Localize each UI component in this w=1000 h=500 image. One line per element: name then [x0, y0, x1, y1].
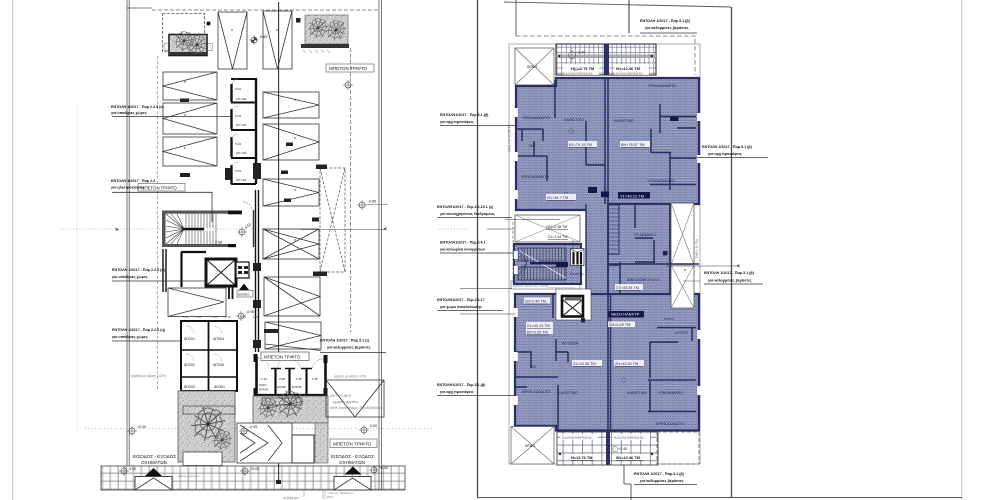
svg-text:Ζ1=43.36 ΤΜ: Ζ1=43.36 ΤΜ: [573, 362, 596, 366]
svg-text:ΚΕΝΟ: ΚΕΝΟ: [527, 65, 537, 69]
svg-text:ΥΠ.ΔΩΜΑΤΙΟ: ΥΠ.ΔΩΜΑΤΙΟ: [633, 233, 656, 237]
svg-text:ΑΠ202: ΑΠ202: [184, 363, 195, 367]
svg-text:2.08: 2.08: [279, 377, 285, 381]
svg-text:Β1=79.15 ΤΜ: Β1=79.15 ΤΜ: [569, 143, 592, 147]
svg-text:για καλυμμένες βεράντες: για καλυμμένες βεράντες: [640, 479, 684, 483]
svg-text:ΕΝΤΟΛΗ 1/2017 - Παρ.3.1 (ε): ΕΝΤΟΛΗ 1/2017 - Παρ.3.1 (ε): [320, 339, 370, 343]
svg-text:Π(;)=2.48 ΤΜ: Π(;)=2.48 ΤΜ: [546, 225, 567, 229]
svg-text:ΑΠ 101: ΑΠ 101: [236, 178, 247, 182]
svg-text:ΚΡΕΒ.ΔΩΜΑΤΙΟ: ΚΡΕΒ.ΔΩΜΑΤΙΟ: [522, 390, 550, 394]
svg-text:-0.05: -0.05: [249, 425, 257, 429]
svg-text:για αρχ.προσόψεις: για αρχ.προσόψεις: [708, 152, 742, 156]
svg-text:ΖΗ=43.90 ΤΜ: ΖΗ=43.90 ΤΜ: [615, 362, 638, 366]
svg-text:0.00: 0.00: [129, 467, 136, 471]
svg-text:για καλυμμένες βεράντες: για καλυμμένες βεράντες: [708, 279, 752, 283]
svg-text:5.04: 5.04: [235, 142, 241, 146]
svg-text:ΚΟΙΝΔ: ΚΟΙΝΔ: [292, 385, 302, 389]
svg-text:ΚΑΘΙΣΤΙΚΟ: ΚΑΘΙΣΤΙΚΟ: [564, 118, 584, 122]
svg-text:Θ1=12.46 ΤΜ: Θ1=12.46 ΤΜ: [616, 455, 640, 460]
svg-text:ΚΟΥΖΙΝΑ: ΚΟΥΖΙΝΑ: [562, 342, 579, 346]
svg-text:Θ1=12.46 ΤΜ: Θ1=12.46 ΤΜ: [616, 66, 640, 71]
svg-text:WC: WC: [529, 144, 536, 148]
svg-text:ΔΙΚΤΥΟ ΔΕΗ: ΔΙΚΤΥΟ ΔΕΗ: [330, 394, 352, 398]
svg-text:ΥΠΝΟΔΩΜΑΤΙΟ: ΥΠΝΟΔΩΜΑΤΙΟ: [521, 175, 549, 179]
svg-text:-0.65: -0.65: [368, 200, 376, 204]
svg-text:ΑΠ 102: ΑΠ 102: [236, 151, 247, 155]
svg-text:ΚΑΘΙΣΤΙΚΟ: ΚΑΘΙΣΤΙΚΟ: [627, 391, 647, 395]
svg-text:1.50: 1.50: [312, 377, 318, 381]
svg-text:1.46: 1.46: [240, 315, 246, 319]
svg-text:είσοδος: είσοδος: [238, 293, 250, 297]
svg-text:ράμπα με κλίση <12%: ράμπα με κλίση <12%: [334, 375, 366, 379]
svg-text:ΥΠΝΟΔΩΜΑΤΙΟ: ΥΠΝΟΔΩΜΑΤΙΟ: [648, 84, 676, 88]
svg-text:για αρχ.προσόψεις: για αρχ.προσόψεις: [440, 120, 474, 124]
svg-text:+0.00: +0.00: [137, 425, 146, 429]
svg-text:5.04: 5.04: [235, 169, 241, 173]
svg-text:ΘΕΣΗ ΗΛΕΚΤΡ: ΘΕΣΗ ΗΛΕΚΤΡ: [611, 312, 640, 317]
svg-text:ΚΡΕΒ.ΔΩΜΑΤΙΟ: ΚΡΕΒ.ΔΩΜΑΤΙΟ: [656, 422, 684, 426]
svg-text:ΔΙΑΔΡ: ΔΙΑΔΡ: [277, 385, 286, 389]
svg-text:ΒΙΒΛΙΟΘΗΚΗ ΚΛΠ: ΒΙΒΛΙΟΘΗΚΗ ΚΛΠ: [627, 278, 660, 282]
svg-text:0.00: 0.00: [370, 424, 377, 428]
svg-text:ΜΠΕΤΟΝ ΤΡΙΦΤΟ: ΜΠΕΤΟΝ ΤΡΙΦΤΟ: [329, 66, 368, 71]
svg-text:PVC: PVC: [327, 495, 334, 499]
svg-text:ΑΠ204: ΑΠ204: [213, 337, 224, 341]
svg-text:ΚΑΛΥΜ ΒΕΡΑΝΤΑ: ΚΑΛΥΜ ΒΕΡΑΝΤΑ: [614, 436, 644, 440]
svg-text:+2.40: +2.40: [576, 51, 585, 55]
svg-text:Υ1=43.13 ΤΜ: Υ1=43.13 ΤΜ: [620, 193, 644, 198]
svg-text:Η=12.76 ΤΜ: Η=12.76 ΤΜ: [571, 455, 593, 460]
svg-text:ΕΝΤΟΛΗ 1/2017 - Παρ.3.1.(β): ΕΝΤΟΛΗ 1/2017 - Παρ.3.1.(β): [640, 19, 691, 23]
svg-text:Η(;)=2.76 ΤΜ: Η(;)=2.76 ΤΜ: [571, 66, 594, 71]
svg-text:ΑΠ 104: ΑΠ 104: [236, 97, 247, 101]
svg-text:ΑΠ 103: ΑΠ 103: [236, 123, 247, 127]
svg-text:για ηλεκτροκίνηση: για ηλεκτροκίνηση: [111, 186, 145, 190]
svg-text:πεζόδρομο: πεζόδρομο: [283, 496, 299, 500]
svg-text:για υπαίθριες χώρες: για υπαίθριες χώρες: [112, 275, 148, 279]
svg-text:ΕΝΤΟΛΗ 1/2017 - Παρ 2.2: ΕΝΤΟΛΗ 1/2017 - Παρ 2.2: [111, 179, 155, 183]
svg-text:ΣΤ=43.45 ΤΜ: ΣΤ=43.45 ΤΜ: [616, 286, 639, 290]
svg-text:ΕΝΤΟΛΗ 1/2017 - Παρ.3.1 (β): ΕΝΤΟΛΗ 1/2017 - Παρ.3.1 (β): [634, 472, 685, 476]
svg-text:ΕΝΤΟΛΗ1/2017 - Περ.2.2.17: ΕΝΤΟΛΗ1/2017 - Περ.2.2.17: [437, 298, 485, 302]
svg-text:+2.40: +2.40: [618, 447, 627, 451]
svg-text:1.50: 1.50: [296, 377, 302, 381]
svg-text:ΚΑΛΥΜ ΒΕΡΑΝΤΑ: ΚΑΛΥΜ ΒΕΡΑΝΤΑ: [613, 72, 643, 76]
svg-text:ΥΠΝΟΔΩΜΑΤΙΟ: ΥΠΝΟΔΩΜΑΤΙΟ: [658, 391, 683, 395]
svg-text:ΕΝΤΟΛΗ 1/2017 - Παρ.3.1 (β): ΕΝΤΟΛΗ 1/2017 - Παρ.3.1 (β): [702, 145, 753, 149]
svg-text:ΛΟΥΤΡΟ: ΛΟΥΤΡΟ: [675, 331, 689, 335]
svg-text:ΕΝΤΟΛΗ 1/2017 - Παρ 2.2.5 (η): ΕΝΤΟΛΗ 1/2017 - Παρ 2.2.5 (η): [112, 268, 166, 272]
svg-text:ΚΕΝΟ: ΚΕΝΟ: [525, 444, 535, 448]
svg-text:ΕΝΤΟΛΗ1/2017 - Περ.2.4.1: ΕΝΤΟΛΗ1/2017 - Περ.2.4.1: [440, 241, 486, 245]
svg-text:ΕΝΤΟΛΗ 1/2017 - Παρ.3.1 (β): ΕΝΤΟΛΗ 1/2017 - Παρ.3.1 (β): [704, 271, 755, 275]
svg-text:ΚΑΘΙΣΤΙΚΟ: ΚΑΘΙΣΤΙΚΟ: [614, 119, 634, 123]
svg-text:Θ1=34.7 ΤΜ: Θ1=34.7 ΤΜ: [547, 196, 568, 200]
svg-text:για χώρο ανακύκλωσης: για χώρο ανακύκλωσης: [440, 305, 482, 309]
svg-text:ηλεκτρ.οχημάτων: ηλεκτρ.οχημάτων: [178, 474, 200, 478]
svg-text:+0.00: +0.00: [379, 466, 388, 470]
svg-text:για κατώφλια ανοιγμάτων: για κατώφλια ανοιγμάτων: [440, 248, 485, 252]
svg-text:1.46: 1.46: [196, 315, 202, 319]
svg-text:ΑΠ301: ΑΠ301: [214, 385, 225, 389]
svg-text:ΜΠΕΤΟΝ ΤΡΙΦΤΟ: ΜΠΕΤΟΝ ΤΡΙΦΤΟ: [141, 186, 177, 191]
svg-text:ΒΗ=78.57 ΤΜ: ΒΗ=78.57 ΤΜ: [621, 143, 644, 147]
svg-text:1.40: 1.40: [261, 377, 267, 381]
svg-text:ΜΠΕΤΟΝ ΤΡΙΦΤΟ: ΜΠΕΤΟΝ ΤΡΙΦΤΟ: [264, 355, 301, 360]
svg-text:5.04: 5.04: [235, 114, 241, 118]
svg-text:1.35: 1.35: [183, 315, 189, 319]
svg-text:ΕΝΤΟΛΗ 1/2017 - Παρ 2.2.5 (κ): ΕΝΤΟΛΗ 1/2017 - Παρ 2.2.5 (κ): [111, 105, 165, 109]
svg-text:1.35: 1.35: [253, 315, 259, 319]
svg-text:1.35: 1.35: [212, 315, 218, 319]
svg-text:ράμπα με κλίση <12%: ράμπα με κλίση <12%: [131, 374, 165, 378]
svg-text:ΕΝΤΟΛΗ 1/2017 - Παρ 2.2.5 (η): ΕΝΤΟΛΗ 1/2017 - Παρ 2.2.5 (η): [112, 328, 166, 332]
svg-text:ηχητικό φρεάτιο: ηχητικό φρεάτιο: [333, 400, 358, 404]
svg-text:ΚΑΛΥΜ ΒΕΡΑΝΤΑ: ΚΑΛΥΜ ΒΕΡΑΝΤΑ: [563, 72, 593, 76]
svg-text:ΑΠΟΘ: ΑΠΟΘ: [259, 388, 269, 392]
svg-text:ΝΤΟΥΛ: ΝΤΟΥΛ: [664, 317, 674, 321]
svg-text:ΣΘ=0.29 ΤΜ: ΣΘ=0.29 ΤΜ: [609, 323, 630, 327]
svg-text:ΕΝΤΟΛΗ1/2017 - Περ.2.2.15.1 (γ: ΕΝΤΟΛΗ1/2017 - Περ.2.2.15.1 (γ): [437, 205, 494, 209]
svg-text:ΜΗΚ διαστάσεων 700x500x500κ: ΜΗΚ διαστάσεων 700x500x500κ: [330, 406, 383, 410]
svg-text:ΚΑΛΥΜ ΒΕΡΑΝΤΑ: ΚΑΛΥΜ ΒΕΡΑΝΤΑ: [562, 436, 592, 440]
svg-text:Β5=0.29 ΤΜ: Β5=0.29 ΤΜ: [527, 331, 548, 335]
svg-text:ΕΝΤΟΛΗ1/2017 - Περ.3.1.(β): ΕΝΤΟΛΗ1/2017 - Περ.3.1.(β): [440, 113, 489, 117]
svg-text:για καλυμμένες βεράντες: για καλυμμένες βεράντες: [645, 26, 689, 30]
svg-text:-0.65: -0.65: [259, 35, 267, 39]
svg-text:Σ1=43.13 ΤΜ: Σ1=43.13 ΤΜ: [527, 324, 550, 328]
svg-text:ΕΝΤΟΛΗ1/2017 - Περ.3.1.(β): ΕΝΤΟΛΗ1/2017 - Περ.3.1.(β): [437, 383, 486, 387]
svg-text:5.04: 5.04: [235, 87, 241, 91]
svg-text:ΕΙΣΟΔΟΣ - ΕΞΟΔΟΣ: ΕΙΣΟΔΟΣ - ΕΞΟΔΟΣ: [331, 454, 374, 459]
svg-text:για υπαίθριες χώρες: για υπαίθριες χώρες: [112, 335, 148, 339]
svg-text:για κοινόχρηστους διαδρόμους: για κοινόχρηστους διαδρόμους: [440, 212, 495, 216]
svg-text:για καλυμμένες βεράντες: για καλυμμένες βεράντες: [327, 346, 371, 350]
svg-text:ΑΠ203: ΑΠ203: [184, 385, 195, 389]
svg-text:-0.95: -0.95: [246, 310, 254, 314]
svg-text:ΟΧΗΜΑΤΩΝ: ΟΧΗΜΑΤΩΝ: [339, 460, 365, 465]
svg-text:για αρχ.προσόψεις: για αρχ.προσόψεις: [440, 390, 474, 394]
svg-text:ΕΙΣΟΔΟΣ - ΕΞΟΔΟΣ: ΕΙΣΟΔΟΣ - ΕΞΟΔΟΣ: [133, 454, 176, 459]
svg-text:ΣΒ=2.40 ΤΜ: ΣΒ=2.40 ΤΜ: [525, 300, 546, 304]
svg-text:Σ1=1.94 ΤΜ: Σ1=1.94 ΤΜ: [548, 235, 567, 239]
svg-text:ΟΧΗΜΑΤΩΝ: ΟΧΗΜΑΤΩΝ: [141, 460, 167, 465]
svg-text:2.56: 2.56: [215, 241, 222, 245]
svg-text:για υπαίθριες χώρες: για υπαίθριες χώρες: [111, 111, 147, 115]
svg-text:WC: WC: [530, 365, 537, 369]
svg-text:ΝΕΑ ΥΨ 43.54 ΤΜ: ΝΕΑ ΥΨ 43.54 ΤΜ: [508, 124, 512, 152]
svg-text:ΑΠ205: ΑΠ205: [213, 363, 224, 367]
svg-text:ΚΑΘΙΣΤΙΚΟ: ΚΑΘΙΣΤΙΚΟ: [558, 391, 578, 395]
svg-text:ΑΠ201: ΑΠ201: [184, 337, 195, 341]
svg-text:ΠΛΑΤΥΣΚ.: ΠΛΑΤΥΣΚ.: [570, 272, 585, 276]
svg-text:ΥΠΝΟΔΩΜΑΤΙΟ: ΥΠΝΟΔΩΜΑΤΙΟ: [522, 116, 550, 120]
svg-text:ΥΠΝΟΔΩΜΑΤΙΟ: ΥΠΝΟΔΩΜΑΤΙΟ: [647, 179, 675, 183]
svg-text:ΜΠΕΤΟΝ ΤΡΙΦΤΟ: ΜΠΕΤΟΝ ΤΡΙΦΤΟ: [333, 442, 372, 447]
svg-text:+0.00: +0.00: [250, 467, 259, 471]
svg-text:ΘΙΚΧ.Φ ΤΜ: ΘΙΚΧ.Φ ΤΜ: [695, 239, 699, 258]
svg-text:ΚΟΙΝ.: ΚΟΙΝ.: [259, 383, 267, 387]
